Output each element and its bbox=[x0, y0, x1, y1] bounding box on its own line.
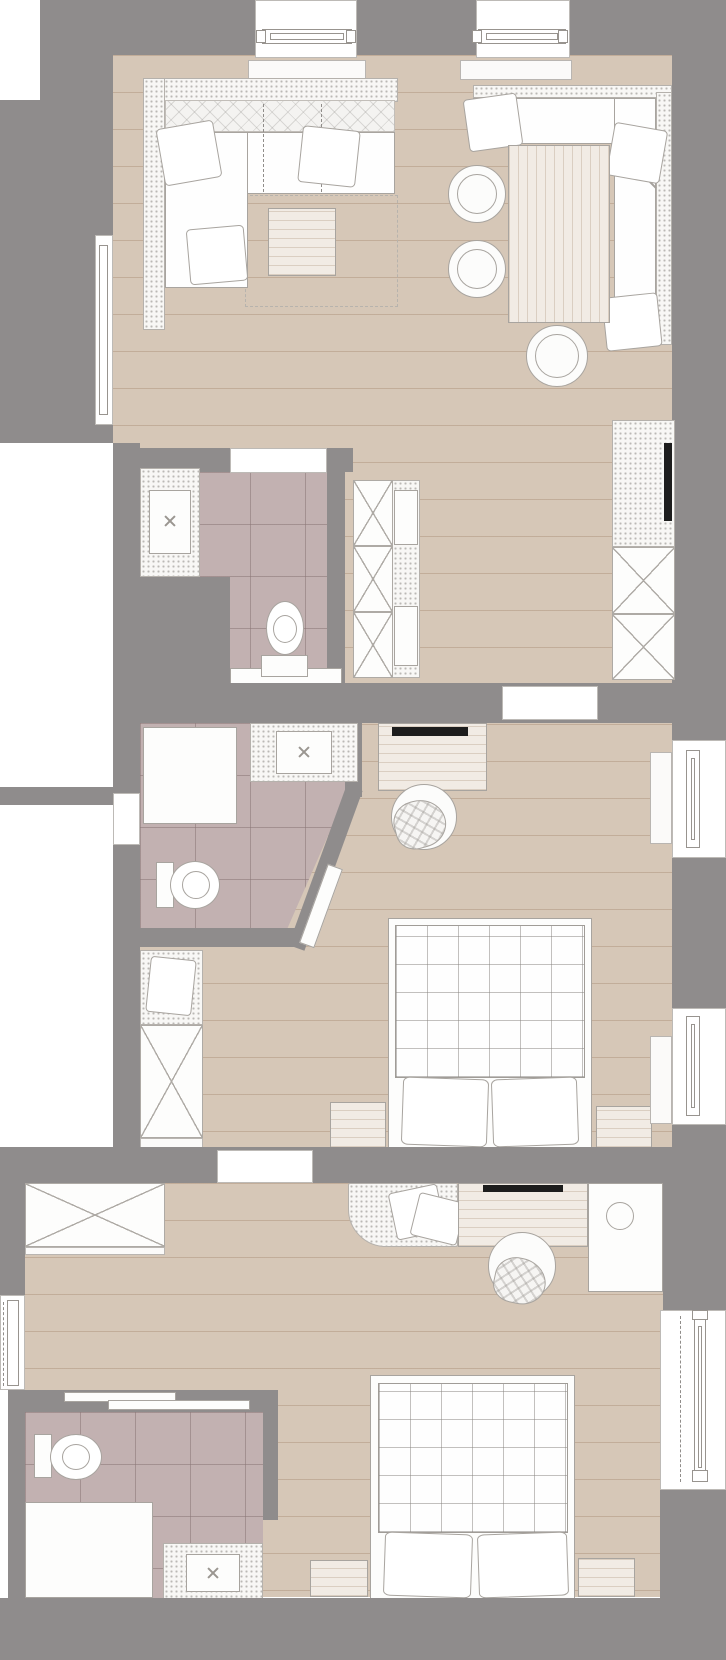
bedroom2-wardrobe-sill bbox=[25, 1247, 165, 1255]
bath1-toilet-bowl-inner bbox=[273, 615, 297, 643]
bedroom2-counter bbox=[588, 1183, 663, 1292]
exterior-wall-right-top bbox=[672, 48, 726, 740]
window-cap-2l bbox=[472, 30, 482, 43]
bedroom1-door-opening bbox=[502, 686, 598, 720]
bath2-shower bbox=[143, 727, 237, 824]
exterior-wall-right-bedroom2 bbox=[663, 1183, 726, 1310]
sofa-seam-1 bbox=[263, 104, 264, 192]
tv-panel-living bbox=[664, 443, 672, 521]
bath1-wall-right bbox=[327, 472, 345, 687]
bedroom2-wall-left-upper bbox=[0, 1147, 25, 1295]
balcony-door-recess bbox=[660, 1310, 726, 1490]
dining-chair-3-cushion bbox=[535, 334, 579, 378]
wardrobe-left-door-1 bbox=[394, 490, 418, 545]
window-cap-2r bbox=[558, 30, 568, 43]
bath2-wall-bottom bbox=[113, 928, 303, 947]
bath1-door-opening bbox=[230, 448, 327, 473]
bedroom1-wardrobe-box bbox=[140, 1025, 203, 1138]
balcony-door-pane bbox=[698, 1326, 702, 1468]
window-sill-north-2 bbox=[460, 60, 572, 80]
balcony-door-cap-top bbox=[692, 1310, 708, 1320]
bedroom1-window-sill-2 bbox=[650, 1036, 672, 1124]
sofa-pillow-2 bbox=[297, 125, 361, 188]
balcony-door-cap-bottom bbox=[692, 1470, 708, 1482]
window-cap-1l bbox=[256, 30, 266, 43]
bedroom2-nightstand-left bbox=[310, 1560, 368, 1597]
coffee-table bbox=[268, 208, 336, 276]
wall-between-bedroom1-bedroom2 bbox=[0, 1147, 672, 1183]
exterior-wall-top-left-upper bbox=[40, 0, 113, 100]
bath3-shower bbox=[25, 1502, 153, 1598]
bedroom2-duvet bbox=[378, 1383, 568, 1533]
bedroom1-wall-left bbox=[113, 928, 140, 1147]
exterior-wall-top-c bbox=[568, 0, 726, 55]
wardrobe-left-box-3 bbox=[353, 612, 393, 678]
bath1-duct-block bbox=[140, 577, 230, 687]
bath2-toilet-bowl-inner bbox=[182, 871, 210, 899]
exterior-wall-stub-west bbox=[0, 787, 113, 805]
bedroom2-nightstand-right bbox=[578, 1558, 635, 1597]
bedroom1-pillow-right bbox=[491, 1077, 579, 1148]
bath1-toilet-tank bbox=[261, 655, 308, 677]
bath3-sliding-door-panel-2 bbox=[108, 1400, 250, 1410]
floor-plan bbox=[0, 0, 726, 1660]
window-west-bedroom2-frame bbox=[7, 1300, 19, 1386]
window-east-2-pane bbox=[691, 1024, 695, 1108]
dining-chair-2-cushion bbox=[457, 249, 497, 289]
exterior-wall-right-lower bbox=[672, 1125, 726, 1183]
bedroom2-door-opening bbox=[217, 1150, 313, 1183]
bench-pillow-3 bbox=[601, 292, 662, 352]
balcony-door-swing bbox=[680, 1316, 681, 1482]
window-cap-1r bbox=[346, 30, 356, 43]
wardrobe-left-box-1 bbox=[353, 480, 393, 546]
dining-table bbox=[508, 145, 610, 323]
bedroom1-monitor bbox=[392, 727, 468, 736]
bedroom1-pillow-left bbox=[401, 1077, 489, 1148]
wardrobe-left-box-2 bbox=[353, 546, 393, 612]
exterior-wall-top-b bbox=[355, 0, 478, 55]
exterior-wall-bottom-band bbox=[0, 1598, 726, 1660]
sofa-pillow-1 bbox=[155, 119, 222, 186]
exterior-wall-top-a bbox=[108, 0, 258, 55]
dining-chair-1-cushion bbox=[457, 174, 497, 214]
bath3-toilet-bowl-inner bbox=[62, 1444, 90, 1470]
wardrobe-right-box-1 bbox=[612, 547, 675, 614]
window-east-1-pane bbox=[691, 758, 695, 840]
window-west-bedroom2-swing bbox=[3, 1302, 4, 1386]
sofa-backrest-top bbox=[143, 78, 398, 102]
bench-pillow-2 bbox=[606, 122, 669, 185]
bath2-window-west bbox=[113, 793, 140, 845]
bedroom1-window-sill-1 bbox=[650, 752, 672, 844]
bedroom2-pillow-right bbox=[477, 1531, 569, 1598]
window-glazing-pane-1 bbox=[270, 33, 344, 40]
bedroom1-nightstand-left bbox=[330, 1102, 386, 1148]
window-west-living-frame bbox=[99, 245, 108, 415]
window-sill-north-1 bbox=[248, 60, 366, 80]
bedroom2-monitor bbox=[483, 1185, 563, 1192]
sofa-pillow-3 bbox=[186, 225, 249, 286]
bedroom2-wardrobe-box bbox=[25, 1183, 165, 1247]
sofa-backrest-left bbox=[143, 78, 165, 330]
bedroom1-duvet bbox=[395, 925, 585, 1078]
bedroom1-nightstand-right bbox=[596, 1106, 652, 1148]
wardrobe-right-box-2 bbox=[612, 614, 675, 680]
wardrobe-left-door-2 bbox=[394, 606, 418, 666]
window-glazing-pane-2 bbox=[486, 33, 558, 40]
bath3-wall-left bbox=[8, 1390, 25, 1600]
bath1-wall-left bbox=[113, 443, 140, 687]
exterior-wall-right-mid bbox=[672, 858, 726, 1008]
bedroom2-pillow-left bbox=[383, 1531, 473, 1598]
bedroom1-bench-pillow bbox=[145, 956, 197, 1017]
bedroom2-counter-basin bbox=[606, 1202, 634, 1230]
bath3-wall-right bbox=[263, 1412, 278, 1520]
bench-pillow-1 bbox=[463, 93, 524, 153]
